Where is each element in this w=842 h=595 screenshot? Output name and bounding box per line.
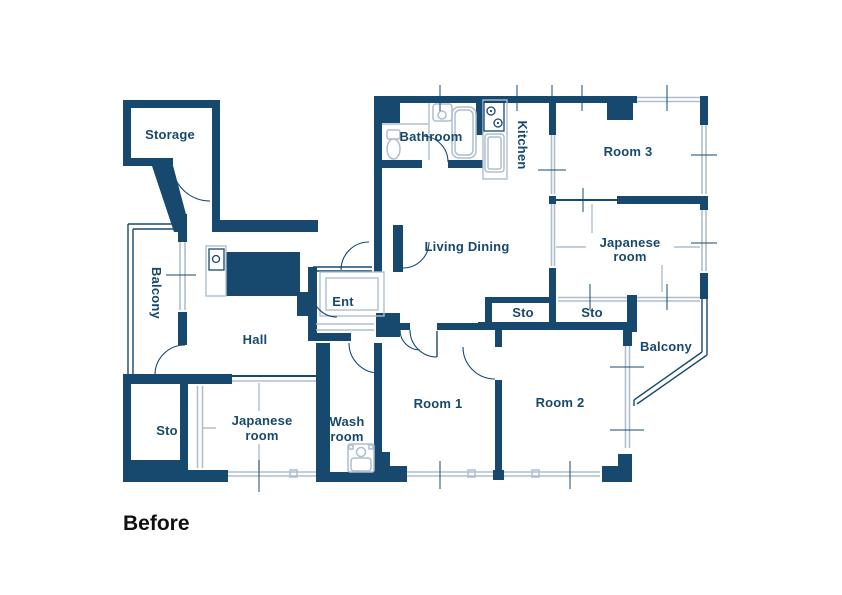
room-label-sto-mid-left: Sto: [512, 305, 534, 320]
floor-plan: Storage Balcony Hall Ent Bathroom Kitche…: [0, 0, 842, 595]
room-label-storage: Storage: [145, 127, 195, 142]
washroom-toilet: [348, 444, 374, 472]
room-label-wash-line2: room: [330, 429, 363, 444]
room-label-sto-mid-right: Sto: [581, 305, 603, 320]
room-label-bathroom: Bathroom: [400, 129, 463, 144]
room-label-ent: Ent: [332, 294, 354, 309]
room-label-room1: Room 1: [414, 396, 463, 411]
room-label-balcony-left: Balcony: [149, 267, 164, 320]
room-label-room3: Room 3: [604, 144, 653, 159]
bathroom-sink: [433, 104, 452, 121]
bathroom-toilet: [387, 130, 400, 159]
room-label-japanese-bottom-line2: room: [245, 428, 278, 443]
room-label-balcony-right: Balcony: [640, 339, 693, 354]
stove: [484, 102, 504, 131]
room-label-kitchen: Kitchen: [515, 120, 530, 169]
room-label-wash-line1: Wash: [330, 414, 365, 429]
room-label-room2: Room 2: [536, 395, 585, 410]
caption-before: Before: [123, 512, 190, 535]
room-label-hall: Hall: [243, 332, 268, 347]
room-label-japanese-right-line1: Japanese: [600, 235, 661, 250]
hall-sink: [206, 246, 226, 296]
room-label-japanese-right-line2: room: [613, 249, 646, 264]
floor-plan-page: Storage Balcony Hall Ent Bathroom Kitche…: [0, 0, 842, 595]
room-label-living-dining: Living Dining: [425, 239, 510, 254]
room-label-japanese-bottom-line1: Japanese: [232, 413, 293, 428]
room-label-sto-bottom-left: Sto: [156, 423, 178, 438]
kitchen-sink: [485, 134, 504, 172]
